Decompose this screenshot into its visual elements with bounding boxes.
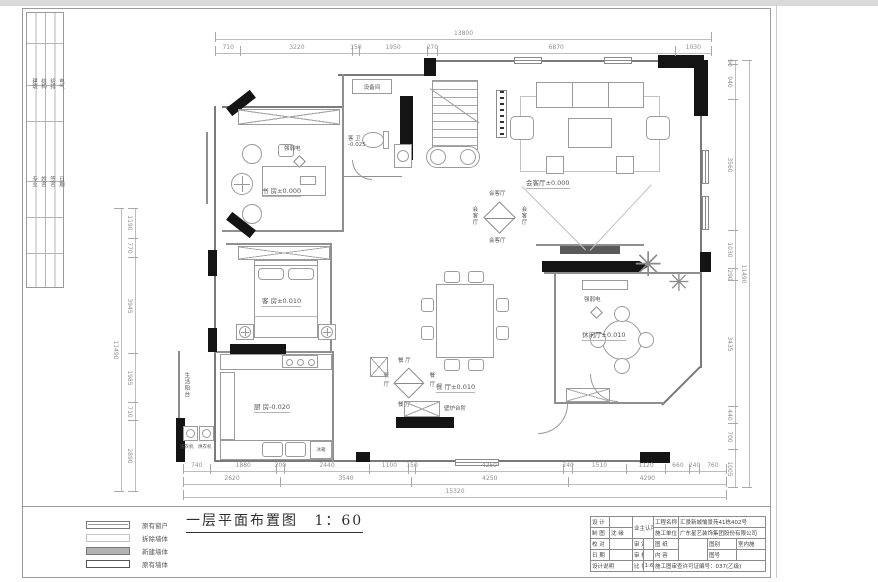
bottom-separator <box>22 506 770 507</box>
legend-label: 新建墙体 <box>142 546 168 556</box>
wall-black-left-2 <box>208 328 217 352</box>
tb-sheet-value <box>679 539 708 561</box>
low-voltage-label: 强弱电 <box>284 146 301 152</box>
tb-project-value: 汇景新城愉景苑41栋402号 <box>679 517 766 528</box>
tb-review-label: 审 核 <box>633 550 644 561</box>
wall-black-tr-v <box>694 60 708 116</box>
dim-segment: 240 <box>563 464 572 474</box>
window <box>702 196 709 230</box>
dim-segment: 740 <box>183 464 210 474</box>
stairs-post <box>460 149 476 165</box>
plant-icon: ✳ <box>634 248 663 282</box>
dim-segment: 1190 <box>128 208 138 238</box>
legend-row: 原有窗户 <box>86 518 168 531</box>
dim-segment: 1030 <box>728 230 738 268</box>
dining-chair <box>421 326 434 340</box>
guest-wardrobe <box>238 246 330 260</box>
dim-segment: 240 <box>689 464 698 474</box>
wall-black-right-stub <box>700 252 711 272</box>
low-voltage-symbol <box>590 306 603 319</box>
wall-study-bath <box>342 74 344 232</box>
balcony-label: 生活阳台 <box>183 372 189 398</box>
legend: 原有窗户 拆除墙体 新建墙体 原有墙体 <box>86 518 168 570</box>
elevation-index-living <box>484 202 516 234</box>
dim-segment: 1100 <box>369 464 408 474</box>
frame-top <box>22 8 770 9</box>
legend-swatch-demolish <box>86 534 130 542</box>
signoff-strip <box>26 12 64 288</box>
legend-row: 拆除墙体 <box>86 531 168 544</box>
wall-black-left-1 <box>208 250 217 276</box>
bed-pillow <box>258 268 284 280</box>
wall-leisure-left <box>554 274 556 404</box>
dim-segment: 1510 <box>572 464 625 474</box>
dryer-label: 烘衣机 <box>198 444 212 450</box>
dining-chair <box>444 271 460 283</box>
dryer-drum <box>202 429 211 438</box>
legend-swatch-new <box>86 547 130 555</box>
tv-sightline <box>522 186 586 250</box>
tb-type-label: 图别 <box>708 539 737 550</box>
tv-sightline <box>590 184 652 251</box>
living-sofa <box>536 82 644 108</box>
signoff-col-label: 建筑 <box>27 78 36 89</box>
living-armchair-left <box>510 116 534 140</box>
tb-builder-value: 广东星艺装饰集团股份有限公司 <box>679 528 766 539</box>
side-table <box>616 156 634 174</box>
study-armchair <box>242 144 262 164</box>
study-desk-item <box>300 176 316 185</box>
signoff-col-label: 给排 <box>45 78 54 89</box>
window <box>514 57 542 64</box>
dim-segment: 3560 <box>728 99 738 230</box>
sofa-divider <box>608 83 609 107</box>
dim-segment: 3435 <box>728 280 738 406</box>
signoff-col-label: 专业 <box>27 176 36 187</box>
bed-headboard <box>254 265 318 266</box>
dim-segment: 290 <box>728 268 738 280</box>
dim-segment: 15320 <box>183 490 727 500</box>
bath-door-arc <box>352 160 372 180</box>
dim-segment: 440 <box>728 406 738 423</box>
sofa-divider <box>572 83 573 107</box>
equipment-label: 设备间 <box>364 83 381 91</box>
dim-top-total: 13800 <box>215 32 712 42</box>
study-table <box>231 173 253 195</box>
dim-segment: 760 <box>699 464 727 474</box>
signoff-col-label: 结构 <box>36 78 45 89</box>
dim-segment: 1005 <box>728 449 738 488</box>
dim-bottom-row1: 7401880200244011001504250240151011206602… <box>183 464 727 474</box>
kitchen-counter-left <box>220 372 235 440</box>
tb-check-value <box>610 539 633 550</box>
tb-type-value: 室内施 <box>737 539 766 550</box>
dim-segment: 770 <box>128 238 138 258</box>
dim-segment: 700 <box>728 423 738 449</box>
dim-segment: 940 <box>728 64 738 99</box>
lamp <box>321 326 333 338</box>
top-strip <box>0 0 878 6</box>
leisure-window-seat <box>566 388 610 402</box>
dim-segment: 660 <box>665 464 689 474</box>
wall-right-lower <box>700 272 702 368</box>
tb-permit: 施工图审查许可证编号：037(乙级) <box>654 561 766 572</box>
legend-row: 新建墙体 <box>86 544 168 557</box>
elevation-tag: 餐 厅 <box>428 372 434 388</box>
leisure-label: 休闲厅±0.010 <box>582 332 626 341</box>
tb-review-value <box>643 550 654 561</box>
window <box>604 57 632 64</box>
dim-right-total: 11490 <box>742 60 752 488</box>
washer-drum <box>186 429 195 438</box>
tb-date-label: 日 期 <box>591 550 610 561</box>
dim-segment: 2440 <box>284 464 370 474</box>
tb-check-label: 校 对 <box>591 539 610 550</box>
kitchen-label: 厨 房-0.020 <box>254 404 290 413</box>
dim-segment: 4250 <box>415 464 563 474</box>
drawing-title-scale: 1：60 <box>314 513 363 529</box>
tb-design-label: 设 计 <box>591 517 610 528</box>
dim-segment: 200 <box>276 464 284 474</box>
equipment-box: 设备间 <box>352 79 392 94</box>
dim-segment: 3540 <box>280 477 411 487</box>
tb-no-label: 图号 <box>708 550 737 561</box>
elevation-tag: 会客厅 <box>471 206 477 226</box>
leisure-cabinet <box>582 280 628 290</box>
paper-edge <box>776 4 777 578</box>
tb-owner-label: 业主认可 <box>633 517 654 539</box>
frame-bottom <box>22 577 770 578</box>
wall-chamfer-right <box>661 366 701 406</box>
dim-segment: 1030 <box>675 46 712 56</box>
dim-left-segments: 1190770394519857102890 <box>128 208 138 492</box>
wall-bath-bottom <box>344 176 402 177</box>
dining-chair <box>468 271 484 283</box>
tb-notes-label: 设计说明 <box>591 561 633 572</box>
tb-sheet-label: 图 纸 <box>654 539 679 550</box>
tb-scale-value: 1:60 <box>643 561 654 572</box>
tb-no-value <box>737 550 766 561</box>
dim-segment: 4250 <box>411 477 568 487</box>
bath-label: 客 卫-0.025 <box>348 136 366 149</box>
dim-bottom-row2: 2620354042504290 <box>183 477 727 487</box>
wall-top-equip <box>338 74 432 76</box>
leisure-chair <box>614 358 630 374</box>
dim-segment: 710 <box>128 402 138 420</box>
window <box>702 150 709 184</box>
tb-scale-label: 比 例 <box>633 561 644 572</box>
stairs <box>432 80 478 150</box>
fireplace-label: 壁炉台阶 <box>444 406 466 412</box>
entry-cabinet <box>496 90 507 138</box>
dim-segment: 6870 <box>437 46 675 56</box>
dim-right-segments: 909403560103029034354407001005 <box>728 60 738 488</box>
frame-left <box>22 8 23 578</box>
toilet-tank <box>383 131 389 149</box>
signoff-col-label: 日期 <box>54 176 63 187</box>
legend-label: 原有窗户 <box>142 520 168 530</box>
tb-approve-label: 审 定 <box>633 539 644 550</box>
side-table <box>546 156 564 174</box>
elevation-tag: 会客厅 <box>520 206 526 226</box>
washer-label: 洗衣机 <box>180 444 194 450</box>
dining-chair <box>421 298 434 312</box>
wall-black-top-stub <box>424 58 436 76</box>
sink <box>262 442 283 457</box>
dim-segment: 2620 <box>183 477 280 487</box>
leisure-chair <box>614 306 630 322</box>
dining-table <box>436 284 494 358</box>
sink <box>285 442 306 457</box>
tb-draft-value: 沈 缘 <box>610 528 633 539</box>
dim-segment: 1950 <box>359 46 427 56</box>
wall-black-bottom-stub <box>356 452 370 462</box>
study-wardrobe <box>238 109 340 125</box>
legend-swatch-window <box>86 521 130 529</box>
drawing-title-text: 一层平面布置图 <box>186 513 298 529</box>
leisure-chair <box>638 332 654 348</box>
legend-swatch-existing <box>86 560 130 568</box>
bath-sink-bowl <box>397 150 409 162</box>
elevation-tag: 会客厅 <box>489 238 506 244</box>
hall-door-arc <box>538 404 568 434</box>
dim-segment: 1120 <box>626 464 666 474</box>
wall-bay-study <box>206 132 208 204</box>
elevation-index-dining <box>394 368 424 398</box>
legend-row: 原有墙体 <box>86 557 168 570</box>
wall-guest-top <box>226 243 332 245</box>
dim-segment: 11490 <box>114 208 124 492</box>
tb-builder-label: 施工单位 <box>654 528 679 539</box>
dim-segment: 1880 <box>210 464 276 474</box>
elevation-tag: 会客厅 <box>489 191 506 197</box>
dim-segment: 3945 <box>128 257 138 353</box>
fireplace-steps <box>404 401 440 417</box>
study-armchair <box>242 204 262 224</box>
signoff-col-label: 签名 <box>45 176 54 187</box>
legend-label: 拆除墙体 <box>142 533 168 543</box>
legend-label: 原有墙体 <box>142 559 168 569</box>
cooktop <box>282 355 318 368</box>
frame-right <box>770 8 771 578</box>
elevation-tag: 餐 厅 <box>398 358 411 364</box>
signoff-col-label: 电气 <box>54 78 63 89</box>
dining-chair <box>444 359 460 371</box>
stairs-post <box>430 149 446 165</box>
lamp <box>239 326 251 338</box>
fridge-label: 冰箱 <box>317 447 326 453</box>
dim-segment: 710 <box>215 46 240 56</box>
living-label: 会客厅±0.000 <box>526 180 570 189</box>
dim-segment: 2890 <box>128 420 138 492</box>
dim-segment: 13800 <box>215 32 712 42</box>
dining-chair <box>468 359 484 371</box>
dim-segment: 1985 <box>128 353 138 402</box>
low-voltage-label: 强弱电 <box>584 297 601 303</box>
signoff-col-label: 姓名 <box>36 176 45 187</box>
tb-content-label: 内 容 <box>654 550 679 561</box>
dim-bottom-total: 15320 <box>183 490 727 500</box>
fridge: 冰箱 <box>310 441 332 459</box>
bed-pillow <box>288 268 314 280</box>
study-label: 书 房±0.000 <box>262 188 301 197</box>
dim-segment: 4290 <box>568 477 727 487</box>
tb-draft-label: 制 图 <box>591 528 610 539</box>
guest-label: 客 房±0.010 <box>262 298 301 307</box>
dim-top-segments: 7103220150195027068701030 <box>215 46 712 56</box>
wall-left <box>214 106 216 462</box>
dim-left-total: 11490 <box>114 208 124 492</box>
floor-plan-sheet: 建筑 结构 给排 电气 专业 姓名 签名 日期 <box>0 0 878 582</box>
bed-blanket-line <box>254 316 318 317</box>
dim-segment: 11490 <box>742 60 752 488</box>
coffee-table <box>568 118 612 148</box>
dining-chair <box>496 326 509 340</box>
living-armchair-right <box>646 116 670 140</box>
dining-chair <box>496 298 509 312</box>
title-block: 设 计 业主认可 工程名称 汇景新城愉景苑41栋402号 制 图 沈 缘 施工单… <box>590 516 766 572</box>
dining-label: 餐 厅±0.010 <box>436 384 475 393</box>
dim-segment: 3220 <box>240 46 352 56</box>
tb-date-value <box>610 550 633 561</box>
tb-approve-value <box>643 539 654 550</box>
dim-segment: 270 <box>427 46 437 56</box>
drawing-title: 一层平面布置图 1：60 <box>186 510 363 533</box>
wall-black-hall-arrow <box>542 261 648 272</box>
wall-black-fireplace <box>396 417 454 428</box>
tb-project-label: 工程名称 <box>654 517 679 528</box>
plant-icon: ✳ <box>668 270 690 296</box>
pass-through-cabinet <box>370 357 388 377</box>
tb-design-value <box>610 517 633 528</box>
wall-leisure-bottom <box>554 402 664 404</box>
